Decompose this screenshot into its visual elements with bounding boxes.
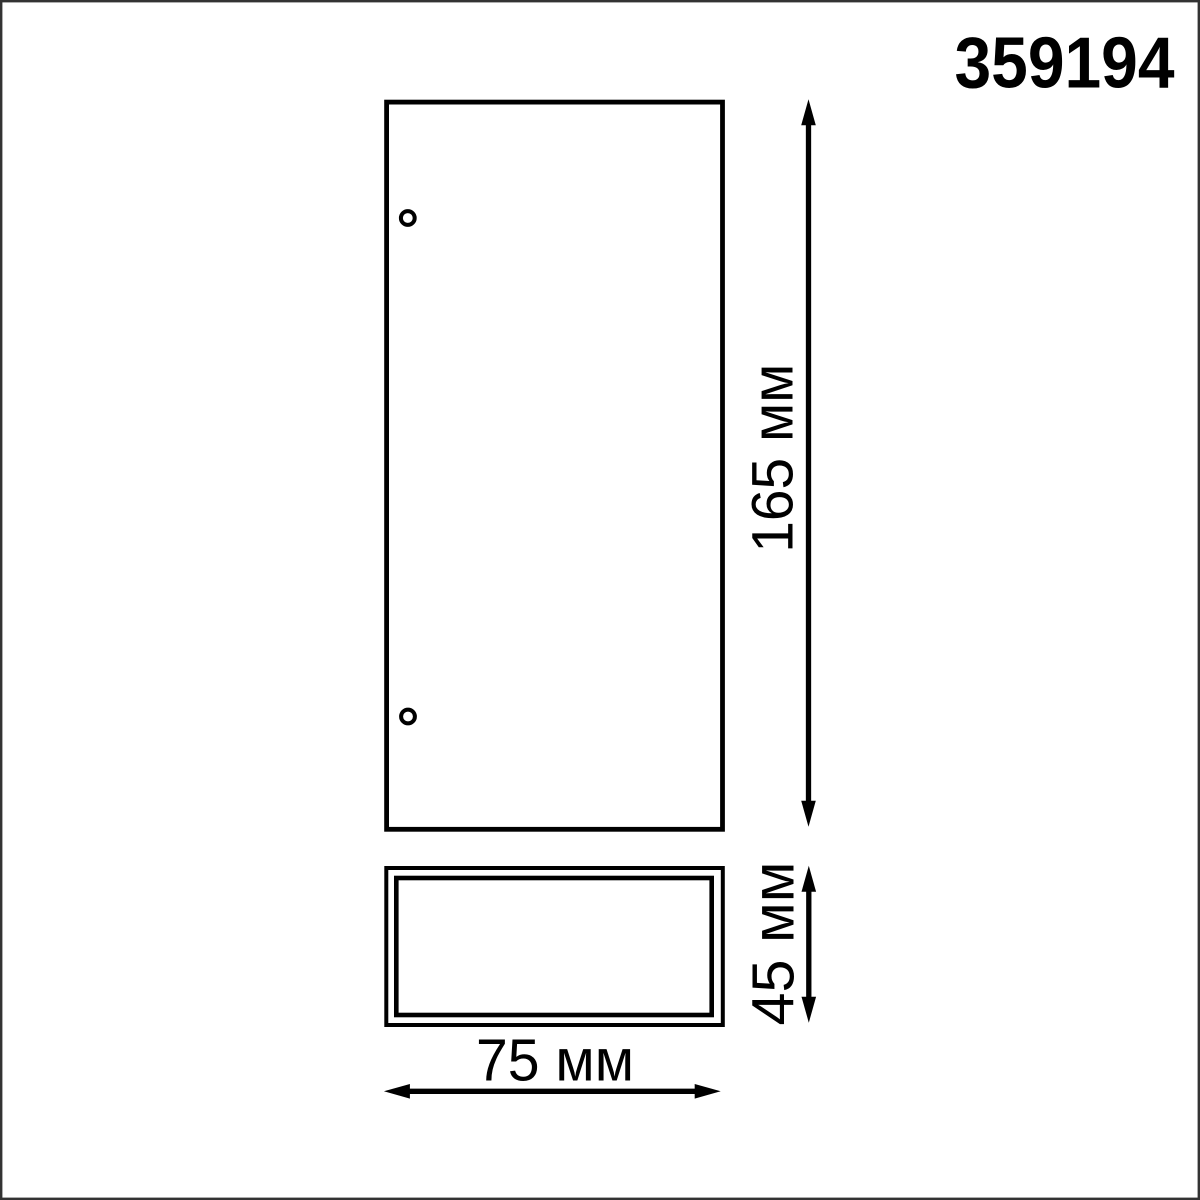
svg-text:75 мм: 75 мм bbox=[476, 1028, 634, 1094]
svg-text:165 мм: 165 мм bbox=[741, 364, 806, 553]
svg-text:359194: 359194 bbox=[955, 22, 1175, 103]
svg-text:45 мм: 45 мм bbox=[740, 862, 807, 1026]
